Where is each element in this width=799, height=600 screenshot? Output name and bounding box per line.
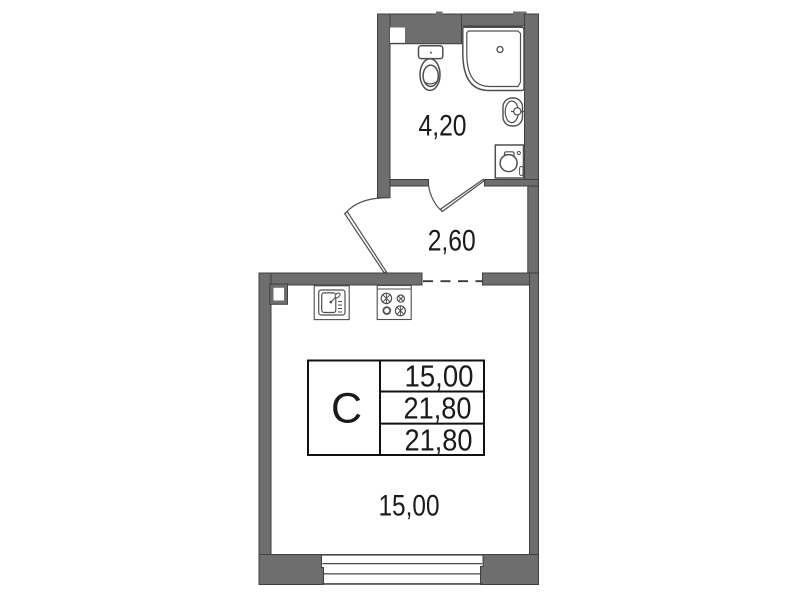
svg-text:2,60: 2,60: [428, 225, 476, 258]
svg-text:21,80: 21,80: [404, 391, 472, 426]
svg-text:15,00: 15,00: [405, 359, 474, 394]
svg-text:С: С: [331, 385, 362, 433]
svg-text:4,20: 4,20: [419, 110, 467, 143]
svg-text:15,00: 15,00: [379, 490, 440, 523]
svg-text:21,80: 21,80: [405, 423, 473, 458]
